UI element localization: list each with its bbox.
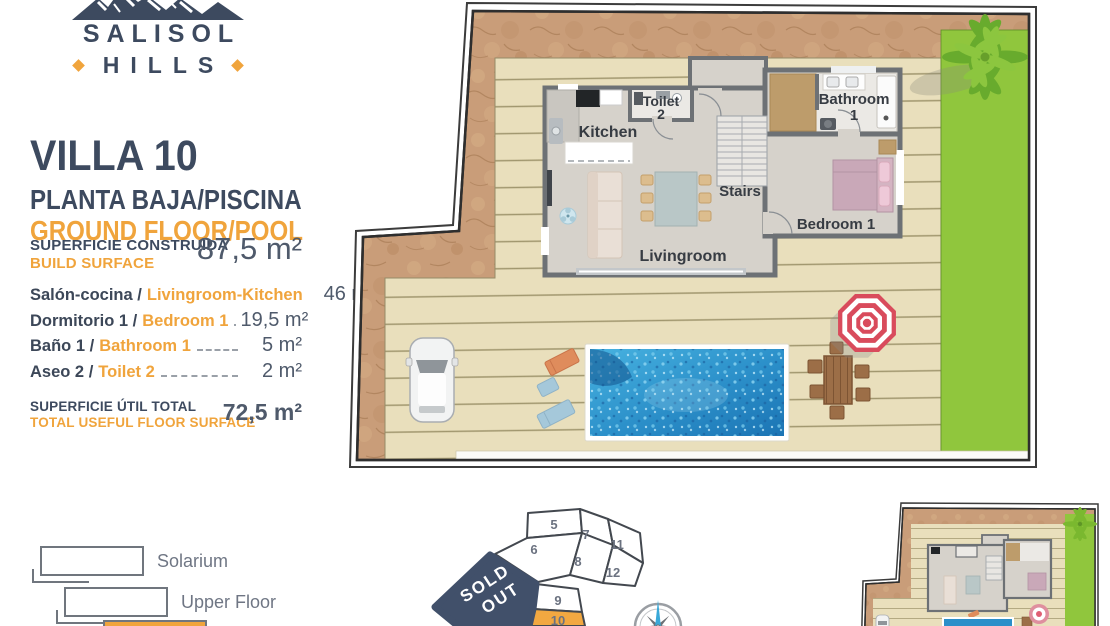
- diamond-icon-left: [72, 59, 85, 72]
- room-label-es: Baño 1 /: [30, 337, 94, 356]
- plot-number: 8: [574, 554, 581, 569]
- dining-table: [655, 172, 697, 226]
- brand-subname: HILLS: [28, 52, 288, 79]
- livingroom-label: Livingroom: [639, 248, 726, 265]
- tv-unit: [547, 170, 552, 206]
- room-row-livingroom-kitchen: Salón-cocina / Livingroom-Kitchen 46 m²: [30, 283, 302, 309]
- bedroom-label: Bedroom 1: [797, 216, 875, 233]
- total-surface-value: 72,5 m²: [223, 399, 302, 426]
- kitchen-sink: [552, 127, 560, 135]
- ground-floor-swatch: [103, 620, 207, 626]
- wood-table: [824, 356, 852, 404]
- plot-number: 6: [530, 542, 537, 557]
- room-label-es: Dormitorio 1 /: [30, 312, 137, 331]
- bedroom-window: [896, 150, 904, 205]
- plot-number: 9: [554, 593, 561, 608]
- legend-row-ground-floor: [103, 620, 207, 626]
- bathroom-num-label: 1: [850, 107, 858, 124]
- solarium-swatch: [40, 546, 144, 576]
- livingroom-window: [541, 227, 549, 255]
- staircase: [717, 116, 767, 186]
- room-label-en: Toilet 2: [98, 363, 155, 382]
- plot-number: 12: [606, 565, 620, 580]
- bathroom-door-opening: [838, 129, 860, 138]
- legend-row-upper-floor: Upper Floor: [64, 587, 276, 617]
- toilet-num-label: 2: [657, 106, 665, 122]
- kitchen-counter: [600, 90, 622, 105]
- room-row-toilet2: Aseo 2 / Toilet 2 2 m²: [30, 360, 302, 386]
- room-row-bedroom1: Dormitorio 1 / Bedroom 1 19,5 m²: [30, 309, 302, 335]
- legend-row-solarium: Solarium: [40, 546, 228, 576]
- total-surface-block: SUPERFICIE ÚTIL TOTAL TOTAL USEFUL FLOOR…: [30, 399, 302, 430]
- dining-set: [641, 172, 711, 226]
- room-value: 19,5 m²: [240, 309, 302, 332]
- info-panel: SALISOL HILLS VILLA 10 PLANTA BAJA/PISCI…: [28, 0, 320, 626]
- kitchen-label: Kitchen: [579, 124, 638, 141]
- diamond-icon-right: [231, 59, 244, 72]
- subtitle-spanish: PLANTA BAJA/PISCINA: [30, 184, 302, 216]
- dotted-leader: [197, 349, 238, 351]
- bedroom-door-opening: [763, 212, 773, 234]
- upper-floor-swatch: [64, 587, 168, 617]
- swimming-pool: [585, 344, 789, 441]
- brochure-page: SALISOL HILLS VILLA 10 PLANTA BAJA/PISCI…: [0, 0, 1110, 626]
- brand-logo: SALISOL HILLS: [28, 0, 288, 79]
- toilet-sink: [634, 92, 643, 105]
- legend-label: Solarium: [157, 551, 228, 572]
- walkway: [456, 451, 1029, 460]
- page-title: VILLA 10: [30, 132, 198, 181]
- bed: [833, 160, 877, 210]
- room-label-es: Aseo 2 /: [30, 363, 93, 382]
- build-surface-block: SUPERFICIE CONSTRUIDA BUILD SURFACE 87,5…: [30, 237, 302, 272]
- room-surface-list: Salón-cocina / Livingroom-Kitchen 46 m² …: [30, 283, 302, 385]
- pillow: [879, 186, 890, 206]
- stove: [576, 90, 600, 107]
- mountains-icon: [68, 0, 248, 20]
- car-icon: [406, 338, 458, 422]
- room-label-en: Bathroom 1: [99, 337, 191, 356]
- build-surface-value: 87,5 m²: [197, 231, 302, 267]
- closet: [770, 74, 816, 131]
- room-value: 5 m²: [242, 334, 302, 357]
- plot-map: SOLD OUT 5 7 11 6 8 12 9 10: [430, 498, 710, 626]
- bathroom-label: Bathroom: [819, 91, 890, 108]
- legend-label: Upper Floor: [181, 592, 276, 613]
- stairs-label: Stairs: [719, 183, 761, 200]
- room-row-bathroom1: Baño 1 / Bathroom 1 5 m²: [30, 334, 302, 360]
- brand-sub-word: HILLS: [92, 52, 224, 79]
- room-label-es: Salón-cocina /: [30, 286, 142, 305]
- wardrobe: [879, 140, 896, 154]
- fan-icon: [560, 208, 576, 224]
- pillow: [879, 162, 890, 182]
- plot-number-highlighted: 10: [551, 613, 565, 626]
- room-label-en: Bedroom 1: [142, 312, 228, 331]
- mini-car-icon: [876, 615, 889, 626]
- site-plan: Kitchen Toilet 2 Stairs Bathroom 1 Bedro…: [336, 0, 1046, 474]
- dotted-leader: [234, 324, 236, 326]
- dotted-leader: [161, 375, 238, 377]
- room-label-en: Livingroom-Kitchen: [147, 286, 303, 305]
- mini-pool: [942, 617, 1014, 626]
- bathroom-window: [831, 66, 876, 73]
- plot-number: 11: [610, 537, 624, 552]
- brand-name: SALISOL: [28, 20, 288, 49]
- mini-umbrella-icon: [1029, 604, 1049, 624]
- mini-site-plan: [856, 488, 1110, 626]
- plot-number: 5: [550, 517, 557, 532]
- compass-icon: [635, 600, 681, 626]
- plot-number: 7: [582, 527, 589, 542]
- room-value: 2 m²: [242, 360, 302, 383]
